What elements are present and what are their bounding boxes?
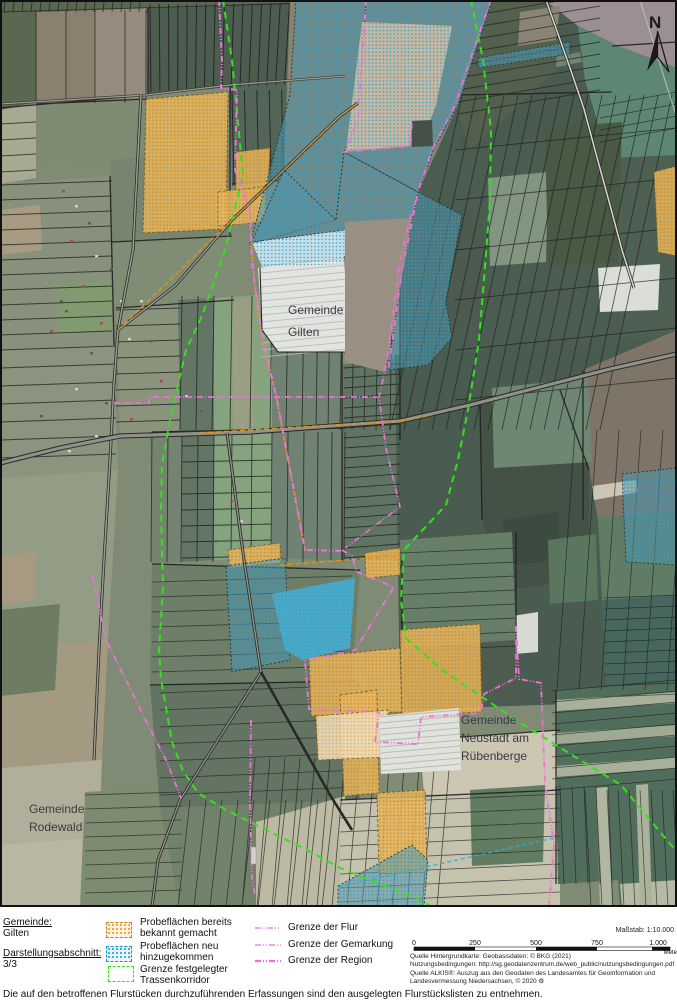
svg-text:500: 500 (530, 940, 542, 947)
svg-text:1.000: 1.000 (649, 940, 667, 947)
svg-text:250: 250 (469, 940, 481, 947)
svg-text:0: 0 (412, 940, 416, 947)
svg-text:750: 750 (591, 940, 603, 947)
